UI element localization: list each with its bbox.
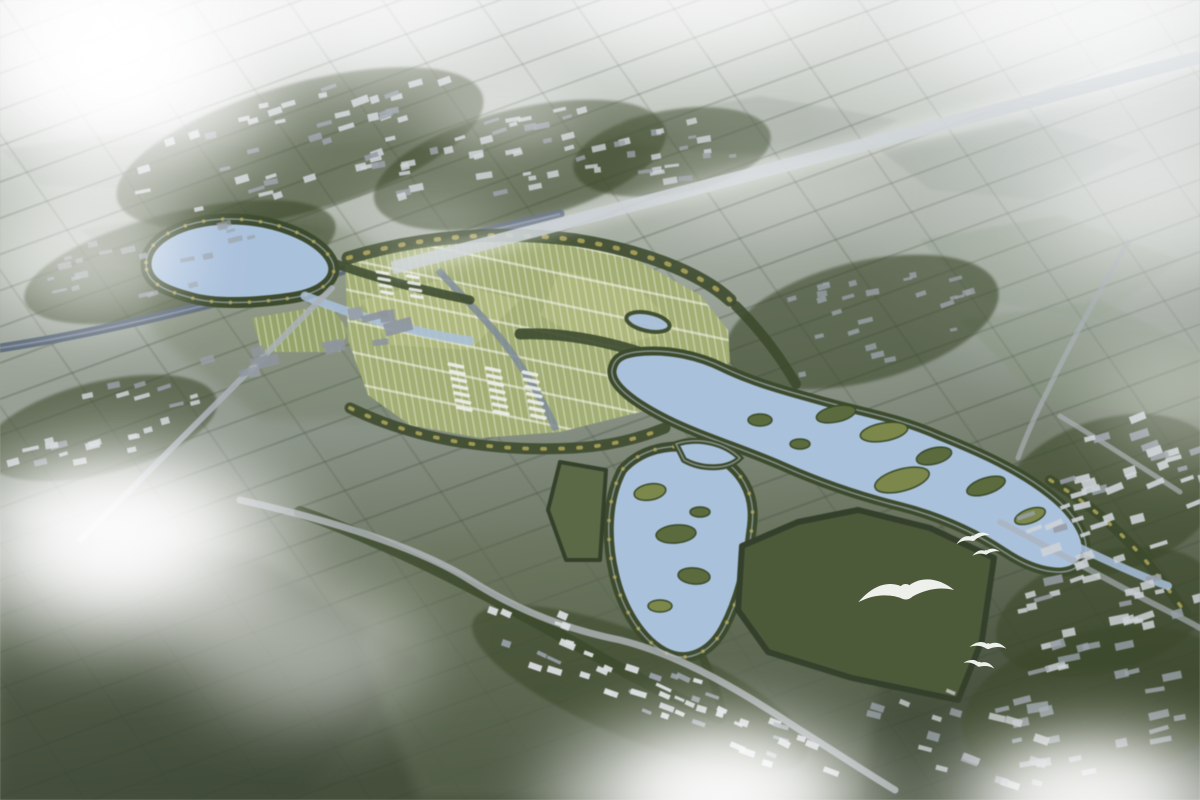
landscape-scene xyxy=(0,0,1200,800)
lake xyxy=(146,219,334,303)
building xyxy=(627,151,636,158)
island xyxy=(790,439,810,449)
aerial-masterplan-rendering xyxy=(0,0,1200,800)
island xyxy=(690,507,710,517)
building xyxy=(703,152,711,158)
building xyxy=(248,366,261,377)
building xyxy=(347,306,364,321)
island xyxy=(748,414,772,426)
island xyxy=(648,600,672,612)
